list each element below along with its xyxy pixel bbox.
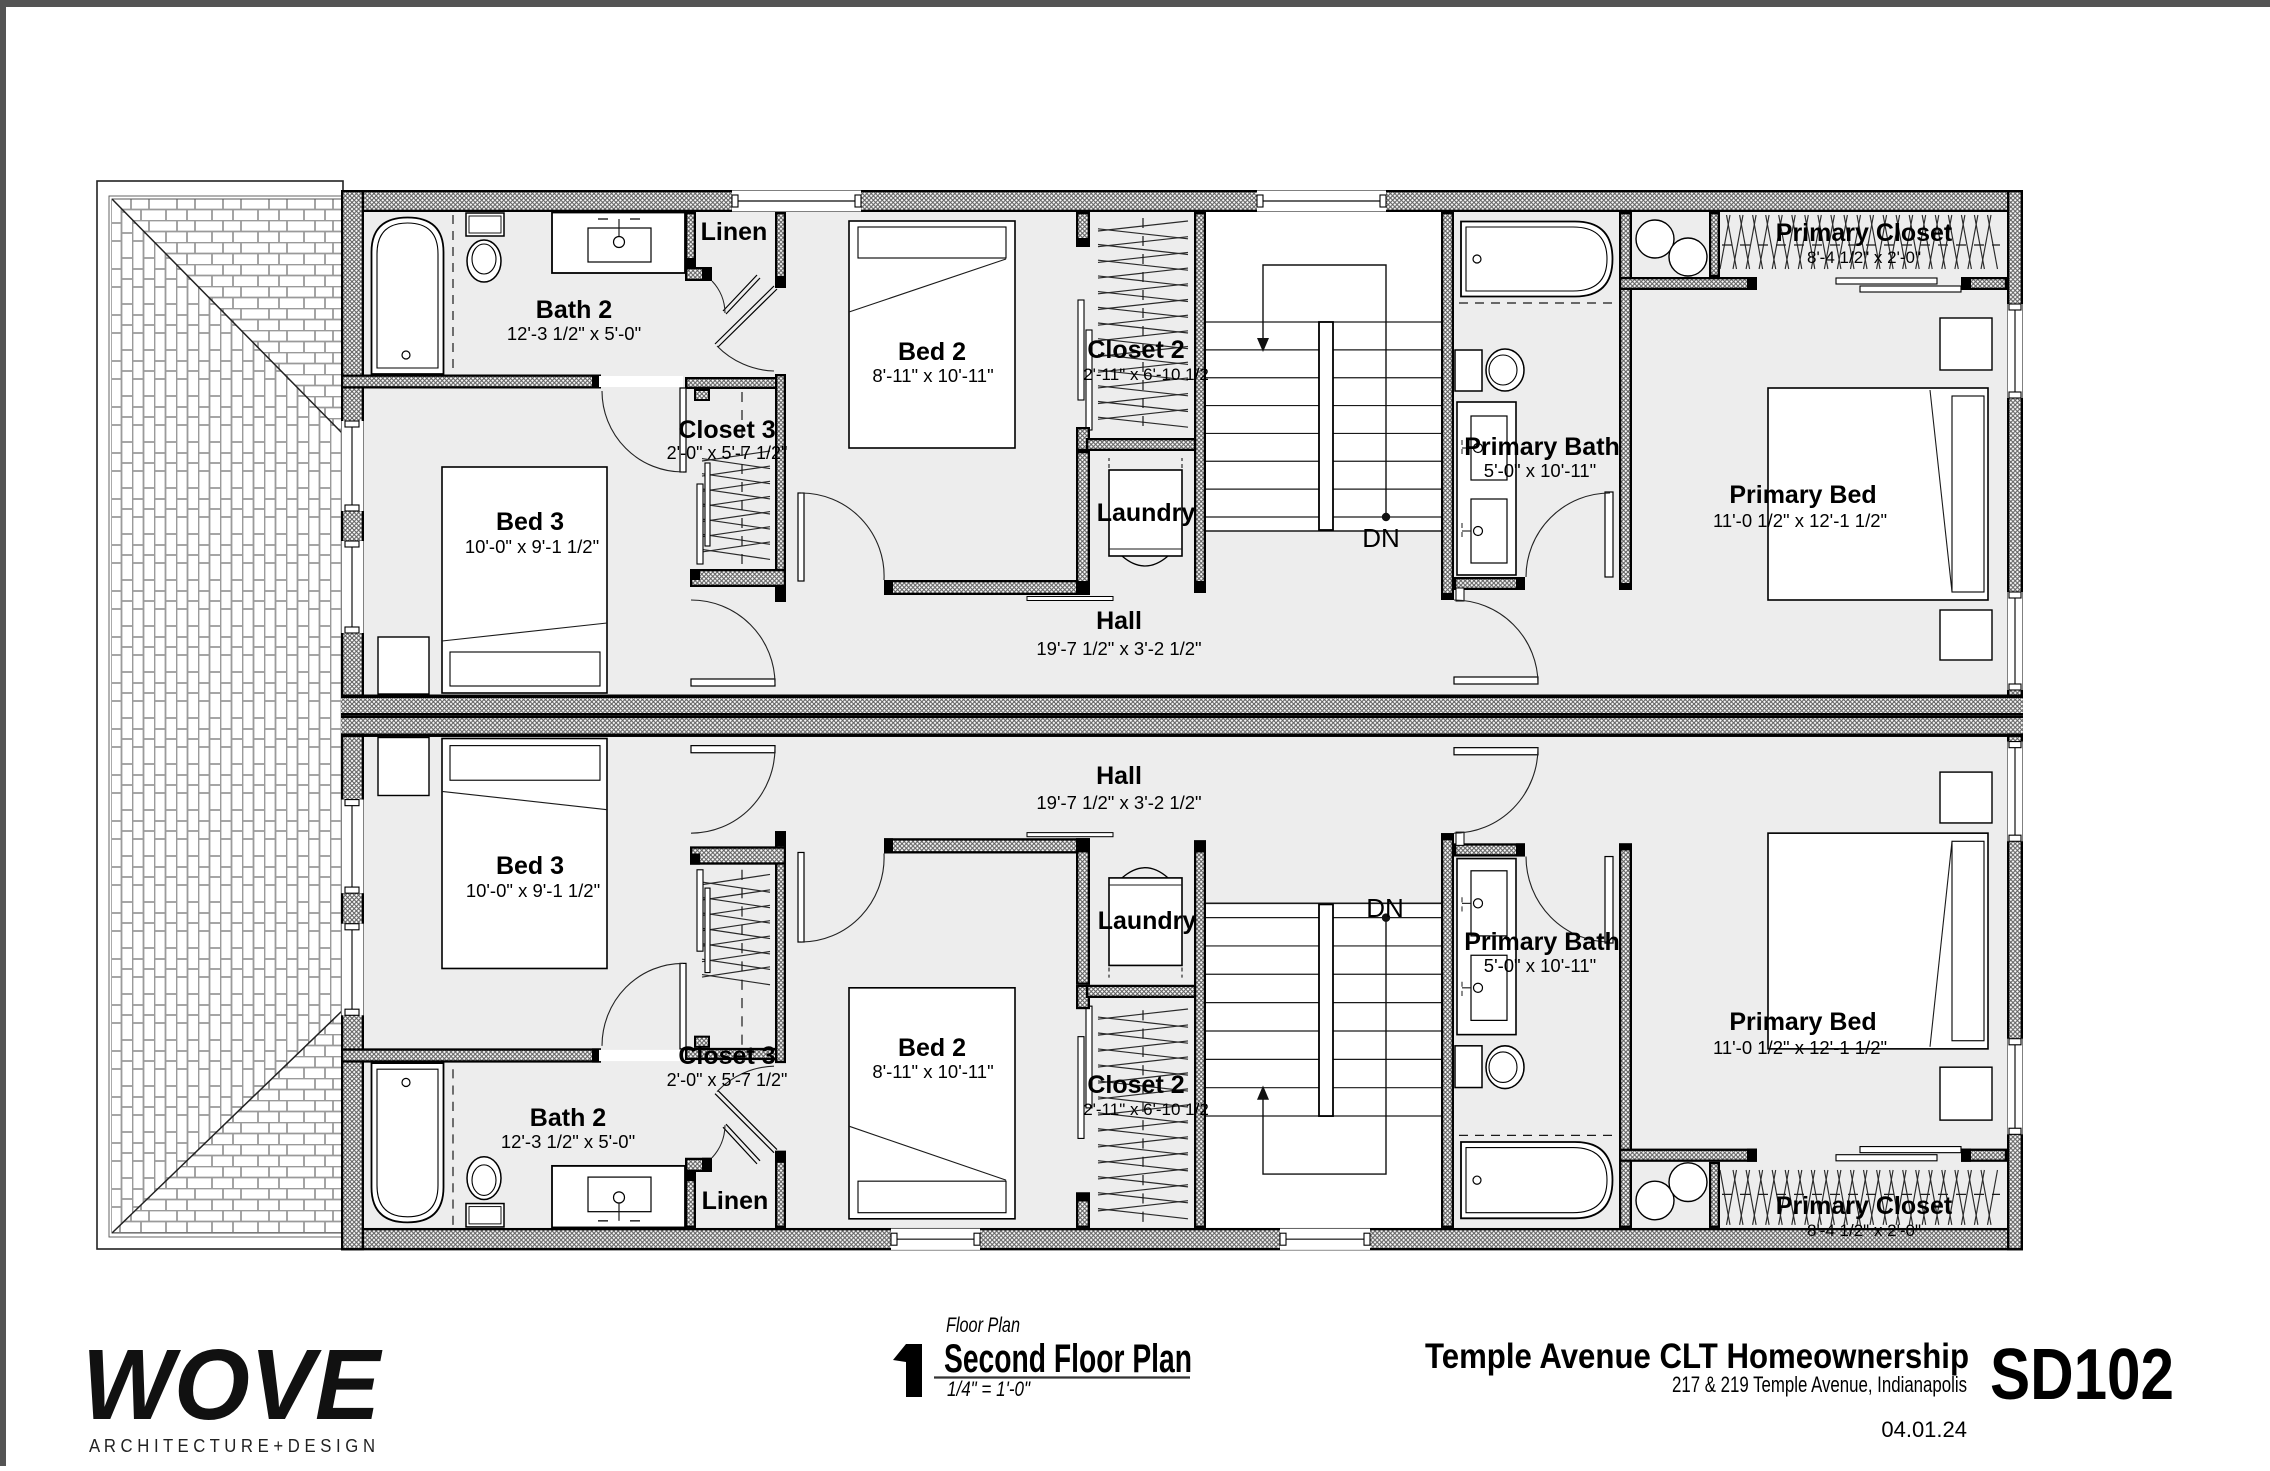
svg-text:WOVE: WOVE (82, 1329, 383, 1441)
svg-text:Hall: Hall (1096, 762, 1142, 790)
svg-text:2'-11" x 6'-10 1/2: 2'-11" x 6'-10 1/2 (1083, 1100, 1209, 1119)
svg-text:Closet 2: Closet 2 (1087, 1071, 1184, 1099)
svg-text:19'-7 1/2" x 3'-2 1/2": 19'-7 1/2" x 3'-2 1/2" (1036, 792, 1201, 813)
svg-text:Hall: Hall (1096, 607, 1142, 635)
svg-text:Temple Avenue CLT Homeownershi: Temple Avenue CLT Homeownership (1425, 1337, 1969, 1376)
svg-text:11'-0 1/2" x 12'-1 1/2": 11'-0 1/2" x 12'-1 1/2" (1713, 510, 1887, 531)
svg-text:SD102: SD102 (1990, 1335, 2174, 1415)
svg-text:12'-3 1/2" x 5'-0": 12'-3 1/2" x 5'-0" (507, 323, 641, 344)
svg-text:19'-7 1/2" x 3'-2 1/2": 19'-7 1/2" x 3'-2 1/2" (1036, 638, 1201, 659)
svg-text:DN: DN (1366, 893, 1404, 923)
svg-text:Second Floor Plan: Second Floor Plan (944, 1337, 1192, 1381)
svg-text:1/4" = 1'-0": 1/4" = 1'-0" (947, 1378, 1031, 1401)
svg-text:Bed 2: Bed 2 (898, 338, 966, 366)
svg-text:Primary Bath: Primary Bath (1464, 433, 1620, 461)
svg-text:Laundry: Laundry (1098, 907, 1197, 935)
svg-text:11'-0 1/2" x 12'-1 1/2": 11'-0 1/2" x 12'-1 1/2" (1713, 1037, 1887, 1058)
svg-text:8'-4 1/2" x 2'-0": 8'-4 1/2" x 2'-0" (1807, 248, 1921, 267)
svg-text:5'-0" x 10'-11": 5'-0" x 10'-11" (1484, 460, 1596, 481)
svg-text:2'-0" x 5'-7 1/2": 2'-0" x 5'-7 1/2" (667, 443, 788, 463)
svg-text:DN: DN (1362, 523, 1400, 553)
svg-text:Laundry: Laundry (1097, 499, 1196, 527)
svg-text:Primary Closet: Primary Closet (1776, 1192, 1953, 1220)
svg-text:8'-11" x 10'-11": 8'-11" x 10'-11" (872, 1061, 993, 1082)
svg-text:Primary Bed: Primary Bed (1729, 481, 1876, 509)
svg-text:Closet 2: Closet 2 (1087, 336, 1184, 364)
svg-text:8'-11" x 10'-11": 8'-11" x 10'-11" (872, 365, 993, 386)
svg-text:10'-0" x 9'-1 1/2": 10'-0" x 9'-1 1/2" (466, 880, 600, 901)
svg-text:Bath 2: Bath 2 (530, 1104, 606, 1132)
svg-text:Linen: Linen (701, 218, 768, 246)
svg-text:2'-11" x 6'-10 1/2: 2'-11" x 6'-10 1/2 (1083, 365, 1209, 384)
svg-text:2'-0" x 5'-7 1/2": 2'-0" x 5'-7 1/2" (667, 1070, 788, 1090)
svg-text:Bath 2: Bath 2 (536, 296, 612, 324)
svg-text:Primary Bed: Primary Bed (1729, 1008, 1876, 1036)
svg-text:Floor Plan: Floor Plan (946, 1314, 1020, 1337)
svg-text:Bed 3: Bed 3 (496, 852, 564, 880)
svg-text:5'-0" x 10'-11": 5'-0" x 10'-11" (1484, 955, 1596, 976)
svg-text:Bed 3: Bed 3 (496, 508, 564, 536)
svg-text:217 & 219 Temple Avenue, India: 217 & 219 Temple Avenue, Indianapolis (1672, 1372, 1967, 1397)
svg-text:8'-4 1/2" x 2'-0": 8'-4 1/2" x 2'-0" (1807, 1221, 1921, 1240)
svg-text:12'-3 1/2" x 5'-0": 12'-3 1/2" x 5'-0" (501, 1131, 635, 1152)
svg-text:Closet 3: Closet 3 (678, 1042, 775, 1070)
svg-text:10'-0" x 9'-1 1/2": 10'-0" x 9'-1 1/2" (465, 536, 599, 557)
svg-text:Primary Bath: Primary Bath (1464, 928, 1620, 956)
svg-text:Linen: Linen (702, 1187, 769, 1215)
svg-text:A R C H I T E C T U R E +: A R C H I T E C T U R E + D E S I G N (89, 1435, 375, 1456)
svg-text:04.01.24: 04.01.24 (1881, 1417, 1967, 1442)
svg-text:Primary Closet: Primary Closet (1776, 219, 1953, 247)
svg-text:Closet 3: Closet 3 (678, 416, 775, 444)
svg-text:Bed 2: Bed 2 (898, 1034, 966, 1062)
